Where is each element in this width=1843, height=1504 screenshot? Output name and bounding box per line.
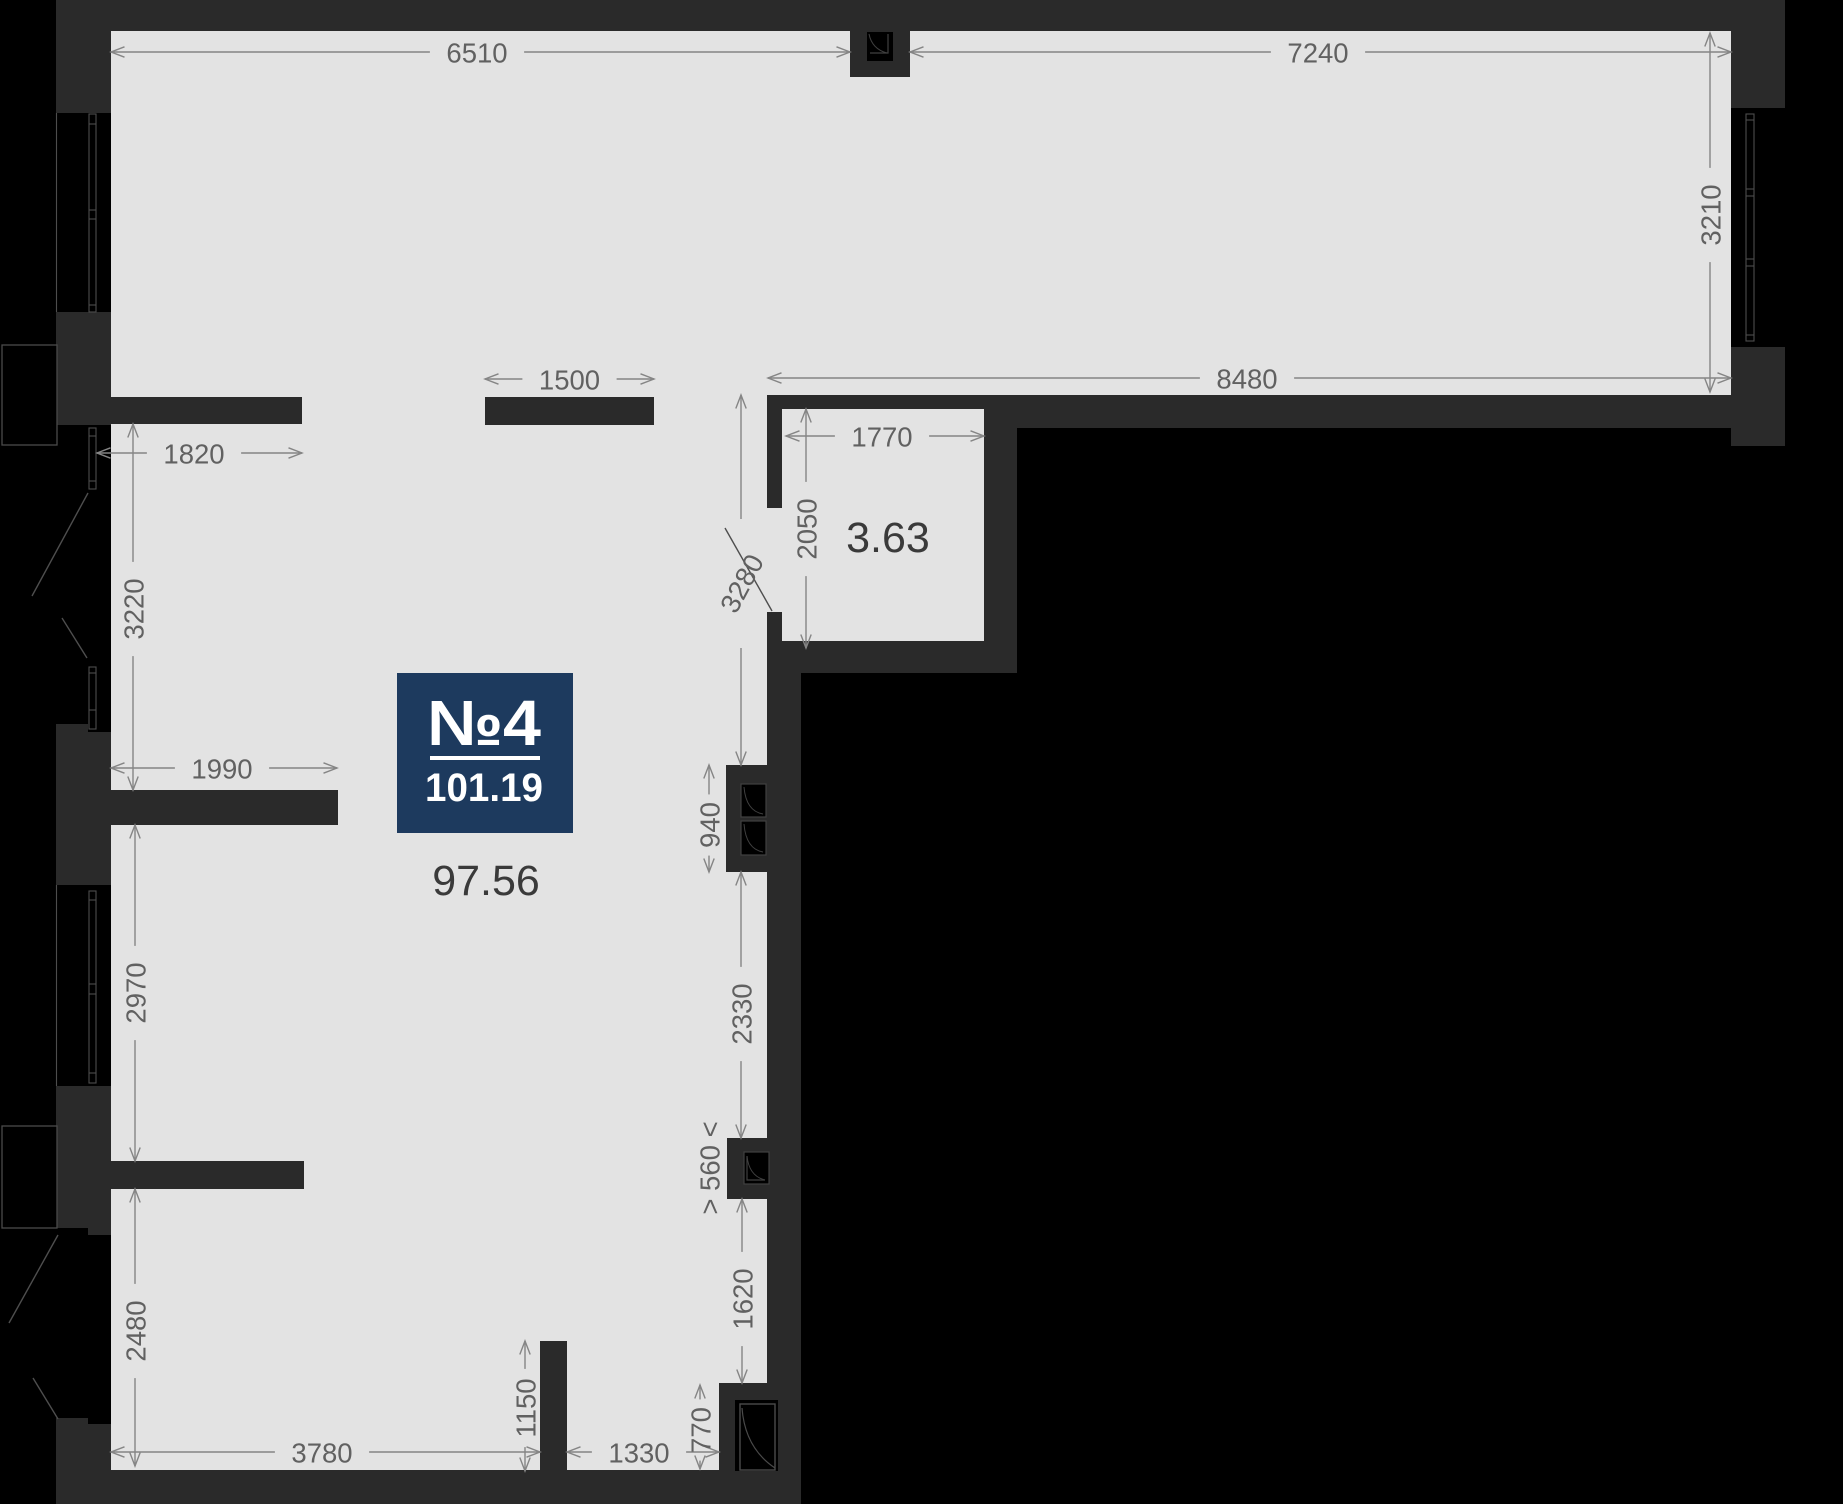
svg-text:1330: 1330	[608, 1438, 669, 1469]
svg-text:1820: 1820	[163, 439, 224, 470]
svg-text:3210: 3210	[1696, 184, 1727, 245]
svg-text:1500: 1500	[539, 365, 600, 396]
svg-text:2970: 2970	[121, 962, 152, 1023]
svg-text:770: 770	[686, 1407, 717, 1453]
svg-text:> 560 <: > 560 <	[695, 1121, 726, 1214]
svg-text:1620: 1620	[728, 1268, 759, 1329]
svg-text:7240: 7240	[1287, 38, 1348, 69]
svg-text:2050: 2050	[792, 498, 823, 559]
svg-text:3.63: 3.63	[846, 514, 930, 562]
svg-text:№4: №4	[427, 687, 541, 759]
svg-text:101.19: 101.19	[425, 766, 543, 810]
svg-text:6510: 6510	[446, 38, 507, 69]
svg-text:1990: 1990	[191, 754, 252, 785]
svg-text:940: 940	[695, 802, 726, 848]
svg-text:1770: 1770	[851, 422, 912, 453]
svg-text:3220: 3220	[119, 578, 150, 639]
svg-text:2480: 2480	[121, 1300, 152, 1361]
svg-text:97.56: 97.56	[432, 857, 540, 905]
svg-text:3780: 3780	[291, 1438, 352, 1469]
svg-text:8480: 8480	[1216, 364, 1277, 395]
svg-text:2330: 2330	[727, 983, 758, 1044]
svg-text:1150: 1150	[511, 1378, 542, 1437]
